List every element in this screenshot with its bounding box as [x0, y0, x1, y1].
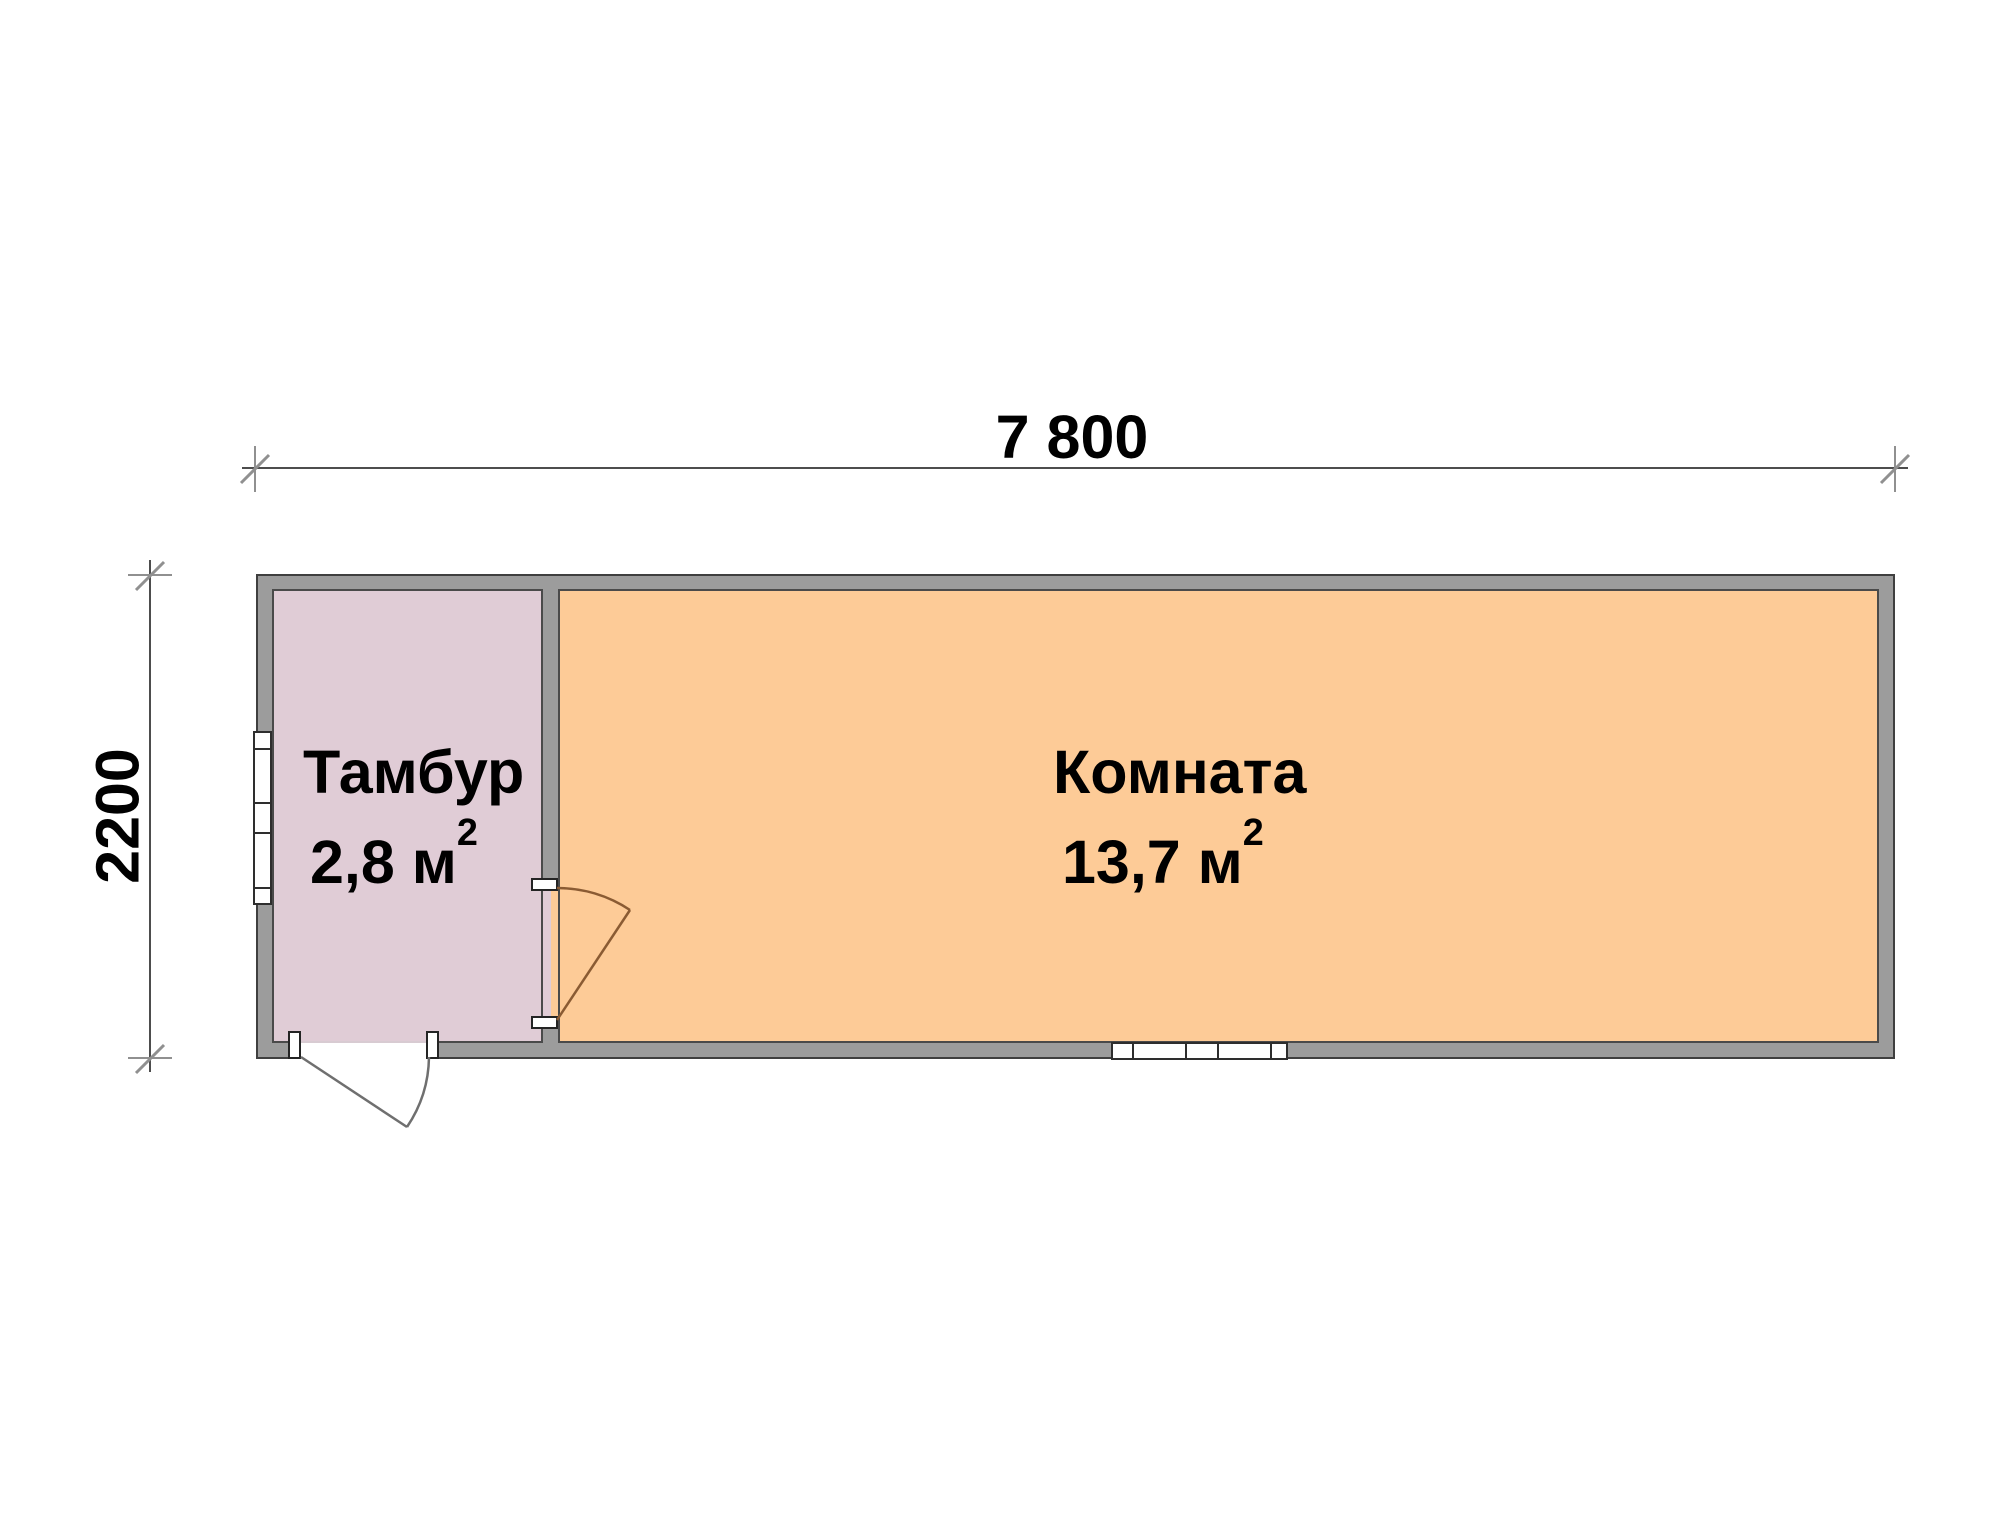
dimension-left-label: 2200 — [88, 748, 149, 884]
window-bottom-divider — [1132, 1044, 1134, 1058]
room-tambur-area-sup: 2 — [457, 812, 478, 854]
exterior-door-opening — [301, 1041, 427, 1062]
exterior-door-jamb-left — [288, 1031, 301, 1059]
exterior-door-swing — [301, 1057, 429, 1127]
interior-door-opening-tambur-side — [543, 891, 551, 1017]
interior-door-jamb-bottom — [531, 1016, 558, 1029]
room-tambur-area: 2,8 м2 — [310, 832, 478, 893]
window-bottom-wall — [1111, 1042, 1288, 1060]
interior-door-jamb-top — [531, 878, 558, 891]
window-left-wall — [253, 731, 272, 905]
room-tambur-name: Тамбур — [303, 742, 524, 803]
room-komnata — [558, 589, 1879, 1043]
room-tambur — [272, 589, 543, 1043]
room-komnata-name: Комната — [1053, 742, 1306, 803]
room-komnata-area: 13,7 м2 — [1062, 832, 1264, 893]
dimension-top-label: 7 800 — [996, 407, 1149, 468]
window-bottom-divider — [1217, 1044, 1219, 1058]
window-left-divider — [255, 832, 270, 834]
window-left-divider — [255, 802, 270, 804]
interior-door-opening-komnata-side — [551, 891, 558, 1017]
floor-plan-canvas: 7 800 2200 Тамбур 2,8 м2 Комната 13,7 м2 — [0, 0, 2000, 1538]
room-komnata-area-sup: 2 — [1243, 812, 1264, 854]
room-komnata-area-text: 13,7 м — [1062, 828, 1243, 896]
window-bottom-divider — [1270, 1044, 1272, 1058]
window-left-divider — [255, 748, 270, 750]
room-tambur-area-text: 2,8 м — [310, 828, 457, 896]
window-left-divider — [255, 887, 270, 889]
exterior-door-jamb-right — [426, 1031, 439, 1059]
window-bottom-divider — [1185, 1044, 1187, 1058]
